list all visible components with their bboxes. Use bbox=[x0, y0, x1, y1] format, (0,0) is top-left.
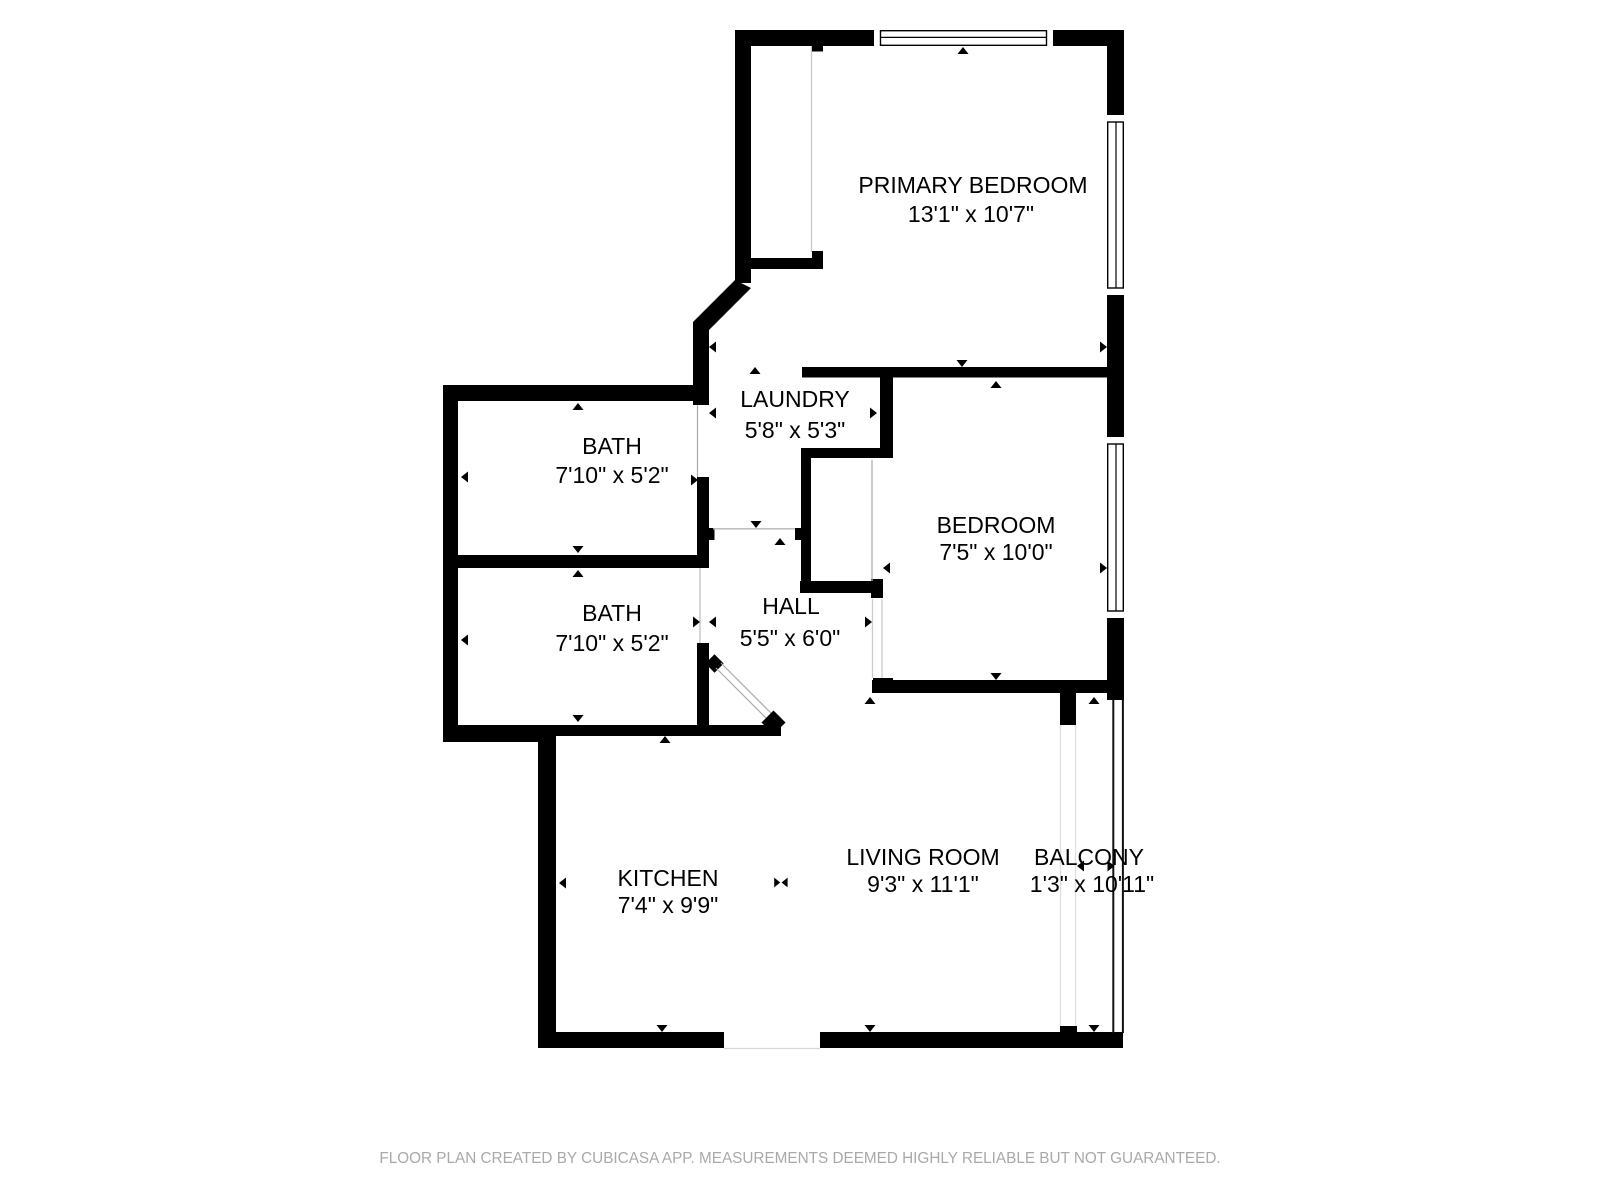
svg-text:7'4" x 9'9": 7'4" x 9'9" bbox=[618, 892, 719, 918]
svg-text:7'5" x 10'0": 7'5" x 10'0" bbox=[939, 539, 1052, 565]
svg-text:HALL: HALL bbox=[762, 593, 820, 619]
svg-text:9'3" x 11'1": 9'3" x 11'1" bbox=[867, 871, 979, 897]
svg-text:BATH: BATH bbox=[582, 433, 642, 459]
svg-text:13'1" x 10'7": 13'1" x 10'7" bbox=[908, 201, 1034, 227]
svg-text:7'10" x 5'2": 7'10" x 5'2" bbox=[555, 630, 668, 656]
svg-text:LAUNDRY: LAUNDRY bbox=[740, 386, 850, 412]
svg-text:5'5" x 6'0": 5'5" x 6'0" bbox=[740, 625, 841, 651]
svg-text:PRIMARY BEDROOM: PRIMARY BEDROOM bbox=[858, 172, 1087, 198]
svg-text:LIVING ROOM: LIVING ROOM bbox=[846, 844, 999, 870]
svg-text:BALCONY: BALCONY bbox=[1034, 844, 1144, 870]
svg-text:FLOOR PLAN CREATED BY CUBICASA: FLOOR PLAN CREATED BY CUBICASA APP. MEAS… bbox=[379, 1150, 1220, 1167]
svg-text:7'10" x 5'2": 7'10" x 5'2" bbox=[555, 462, 668, 488]
svg-text:5'8" x 5'3": 5'8" x 5'3" bbox=[745, 417, 846, 443]
svg-text:KITCHEN: KITCHEN bbox=[618, 865, 719, 891]
svg-text:1'3" x 10'11": 1'3" x 10'11" bbox=[1030, 871, 1154, 897]
svg-text:BATH: BATH bbox=[582, 600, 642, 626]
svg-text:BEDROOM: BEDROOM bbox=[937, 512, 1056, 538]
